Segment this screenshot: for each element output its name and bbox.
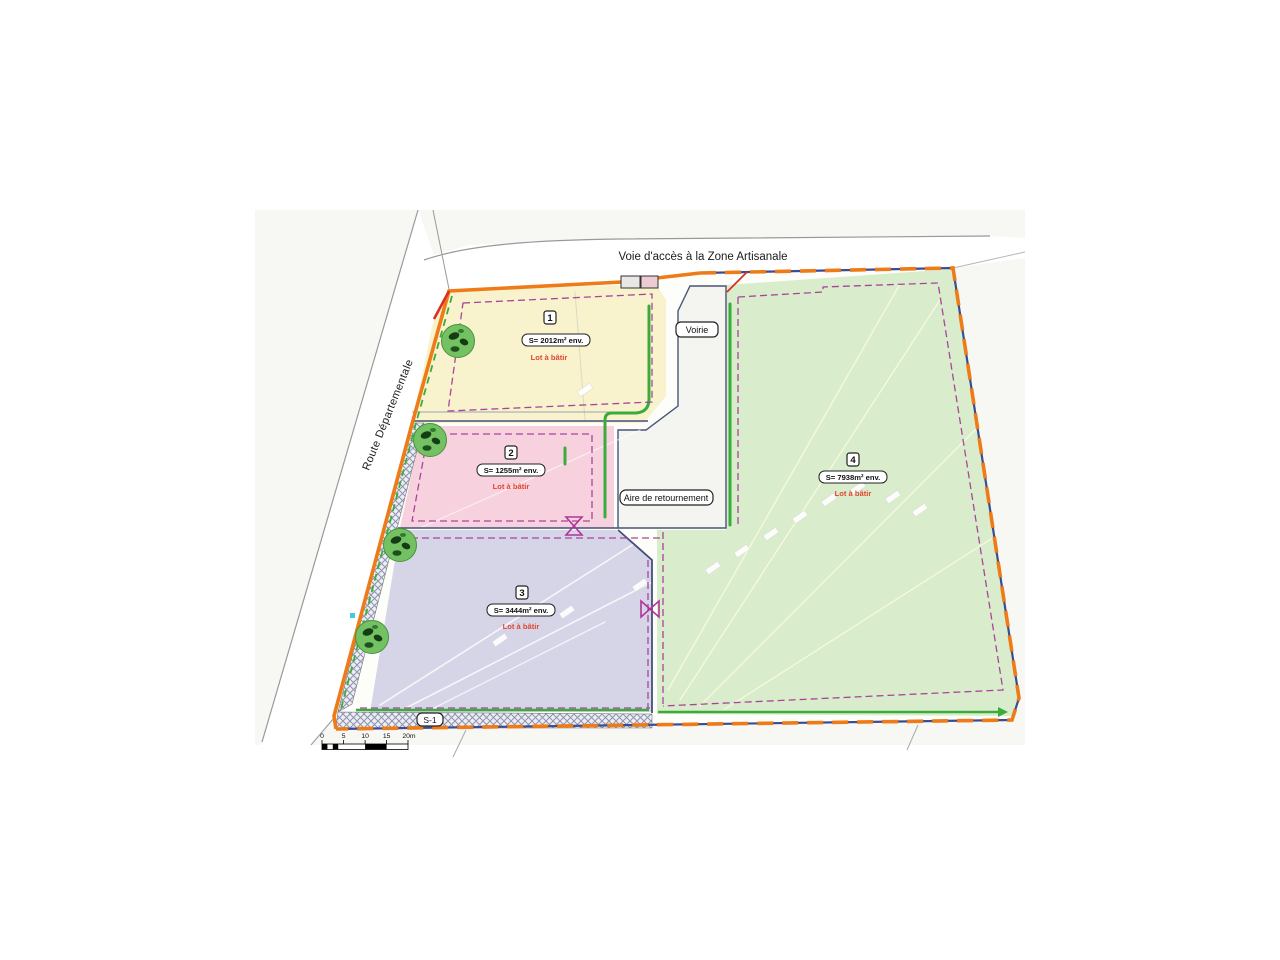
scale-tick-0: 0 <box>320 733 324 740</box>
lot-4-area: S= 7938m² env. <box>826 473 881 482</box>
lot-2-status: Lot à bâtir <box>493 482 530 491</box>
site-plan: Voie d'accès à la Zone Artisanale Route … <box>0 0 1280 960</box>
lot-3-area: S= 3444m² env. <box>494 606 549 615</box>
scale-tick-15: 15 <box>383 733 391 740</box>
entrance-block-pink <box>641 276 658 288</box>
scale-tick-10: 10 <box>361 733 369 740</box>
tree-icon <box>356 621 389 654</box>
tree-icon <box>414 424 447 457</box>
turning-area-label: Aire de retournement <box>624 493 709 503</box>
lot-1-area: S= 2012m² env. <box>529 336 584 345</box>
tree-icon <box>384 529 417 562</box>
lot-2-number: 2 <box>508 448 513 459</box>
lot-2-area: S= 1255m² env. <box>484 466 539 475</box>
site-plan-drawing: Voie d'accès à la Zone Artisanale Route … <box>0 0 1280 960</box>
section-label: S-1 <box>423 715 437 725</box>
voirie-label: Voirie <box>686 325 709 335</box>
scale-tick-5: 5 <box>342 733 346 740</box>
access-road-label: Voie d'accès à la Zone Artisanale <box>618 251 787 263</box>
lot-4-status: Lot à bâtir <box>835 489 872 498</box>
entrance-blocks <box>621 276 658 288</box>
voirie-label-box: Voirie <box>676 322 718 337</box>
lot-1-number: 1 <box>547 313 553 324</box>
lot-1-status: Lot à bâtir <box>531 353 568 362</box>
tree-icon <box>442 325 475 358</box>
section-label-box: S-1 <box>417 713 443 726</box>
lot-3-number: 3 <box>519 588 524 599</box>
lot-3-status: Lot à bâtir <box>503 622 540 631</box>
turning-area-label-box: Aire de retournement <box>620 490 713 505</box>
hydrant-marker <box>350 613 355 618</box>
scale-tick-20m: 20m <box>402 733 416 740</box>
entrance-block-gray <box>621 276 640 288</box>
lot-4-number: 4 <box>850 455 856 466</box>
